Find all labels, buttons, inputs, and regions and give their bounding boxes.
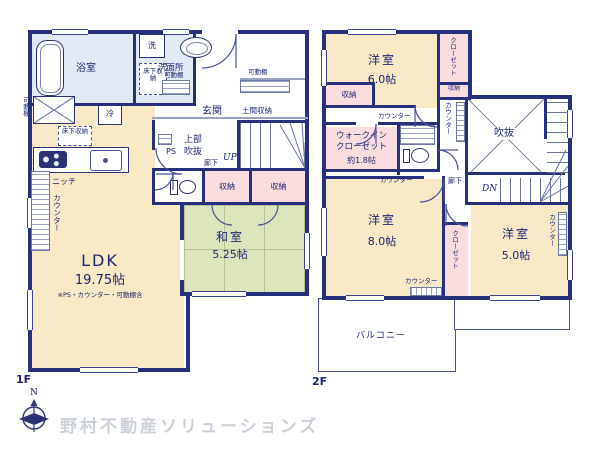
up-label: UP — [223, 153, 237, 163]
wall — [322, 30, 471, 34]
compass-north-label: N — [30, 388, 38, 398]
bedroom8-door — [420, 178, 444, 202]
floor-plan: 浴室 洗 床下収納 洗面所 可動棚 可動棚 床下収納 冷 玄関 可動棚 土間収納… — [0, 0, 600, 450]
closet-b-label: クローゼット — [451, 230, 458, 269]
wall — [322, 169, 440, 172]
hall-2f-label: 廊下 — [448, 177, 462, 185]
window — [321, 208, 327, 256]
stairs-winder — [278, 123, 305, 168]
laundry-label: 洗 — [148, 41, 156, 50]
fridge-label: 冷 — [106, 109, 114, 118]
closet-a-label: クローゼット — [449, 37, 456, 76]
bedroom5-size: 5.0帖 — [482, 250, 550, 263]
wall — [468, 30, 472, 99]
kitchen-sink — [90, 150, 122, 171]
bath-label: 浴室 — [76, 63, 96, 75]
window — [490, 295, 540, 301]
washitsu-name: 和室 — [198, 231, 262, 245]
floor2-label: 2F — [312, 376, 327, 389]
wall — [186, 296, 190, 372]
movable-shelf-left — [33, 96, 75, 124]
entry-shelf — [240, 80, 290, 93]
dn-label: DN — [482, 184, 497, 194]
ps-duct — [158, 134, 172, 145]
counter-c-label: カウンター — [380, 177, 413, 184]
counter-1f-label: カウンター — [53, 194, 61, 232]
counter-d-label: カウンター — [405, 278, 438, 285]
window — [80, 367, 138, 373]
toilet-bowl-2f — [411, 148, 429, 163]
toilet1-door — [155, 172, 173, 190]
shelf-wash-label: 可動棚 — [164, 72, 184, 79]
ps-label: PS — [166, 147, 176, 156]
ldk-name: LDK — [55, 252, 145, 270]
bedroom5-door — [446, 204, 468, 226]
hall-label: 廊下 — [204, 159, 218, 167]
window — [567, 250, 573, 280]
storage-a-label: 収納 — [205, 182, 249, 191]
bedroom6-size: 6.0帖 — [352, 74, 412, 87]
shelf-left-label: 可動棚 — [22, 97, 29, 117]
entrance-label: 玄関 — [202, 106, 222, 118]
void-label: 吹抜 — [492, 128, 516, 140]
toilet2-counter — [400, 125, 435, 145]
wall — [326, 105, 416, 108]
counter-e-label: カウンター — [548, 214, 555, 247]
toilet-tank-2f — [403, 149, 410, 163]
washitsu-closet-door-a — [212, 205, 232, 225]
storage2-a-label: 収納 — [440, 86, 468, 93]
bedroom5-name: 洋室 — [482, 228, 550, 242]
balcony-label: バルコニー — [356, 331, 406, 341]
bedroom8-name: 洋室 — [350, 214, 414, 228]
corridor-counter — [456, 102, 465, 142]
washitsu-closet-door-b — [258, 205, 278, 225]
wall — [152, 120, 155, 150]
washitsu-size: 5.25帖 — [196, 249, 264, 262]
upper-void-label-2: 吹抜 — [184, 147, 202, 157]
compass-icon — [14, 392, 54, 436]
counter-b-label: カウンター — [378, 113, 411, 120]
toilet2-door — [438, 150, 458, 170]
window — [346, 295, 384, 301]
bathtub — [36, 40, 64, 96]
ldk-note: ※PS・カウンター・可動棚含 — [32, 292, 168, 299]
entrance-step-line — [152, 117, 308, 119]
wall — [465, 202, 572, 205]
upper-void-label-1: 上部 — [184, 135, 202, 145]
bed5-counter — [558, 212, 567, 256]
wic-label-2: クローゼット — [326, 143, 397, 153]
storage-b-label: 収納 — [252, 182, 305, 191]
shelf-entry-label: 可動棚 — [248, 69, 268, 76]
bedroom8-size: 8.0帖 — [350, 236, 414, 249]
wall — [322, 122, 356, 125]
window — [348, 29, 396, 35]
stove — [39, 151, 67, 168]
ldk-counter — [31, 171, 50, 251]
ldk-size: 19.75帖 — [55, 274, 145, 289]
doma-label: 土間収納 — [242, 107, 272, 116]
stairs-up — [240, 123, 280, 168]
movable-shelf-wash — [162, 80, 190, 95]
bedroom6-door — [415, 105, 437, 127]
wic-label-1: ウォークイン — [326, 132, 397, 142]
wic-size: 約1.8帖 — [326, 156, 397, 165]
balcony-right — [454, 298, 570, 330]
window — [52, 29, 88, 35]
front-door — [202, 34, 236, 68]
storage2-b-label: 収納 — [326, 91, 372, 100]
niche-label: ニッチ — [52, 177, 76, 186]
washitsu-opening — [180, 240, 184, 280]
window — [304, 233, 310, 269]
underfloor-b-label: 床下収納 — [61, 128, 89, 135]
brand-logo-text: 野村不動産ソリューションズ — [60, 412, 319, 437]
bed8-counter — [410, 287, 442, 296]
faucet — [103, 158, 108, 163]
counter-a-label: カウンター — [444, 102, 451, 135]
window — [163, 29, 189, 35]
wall — [133, 34, 136, 104]
toilet-bowl-1f — [179, 180, 196, 194]
stairs-winder-2f — [540, 148, 568, 202]
bathtub-inner — [40, 44, 61, 93]
bedroom6-name: 洋室 — [352, 54, 412, 68]
wall — [465, 99, 468, 205]
window — [321, 50, 327, 86]
window — [192, 291, 246, 297]
floor1-label: 1F — [16, 374, 31, 387]
